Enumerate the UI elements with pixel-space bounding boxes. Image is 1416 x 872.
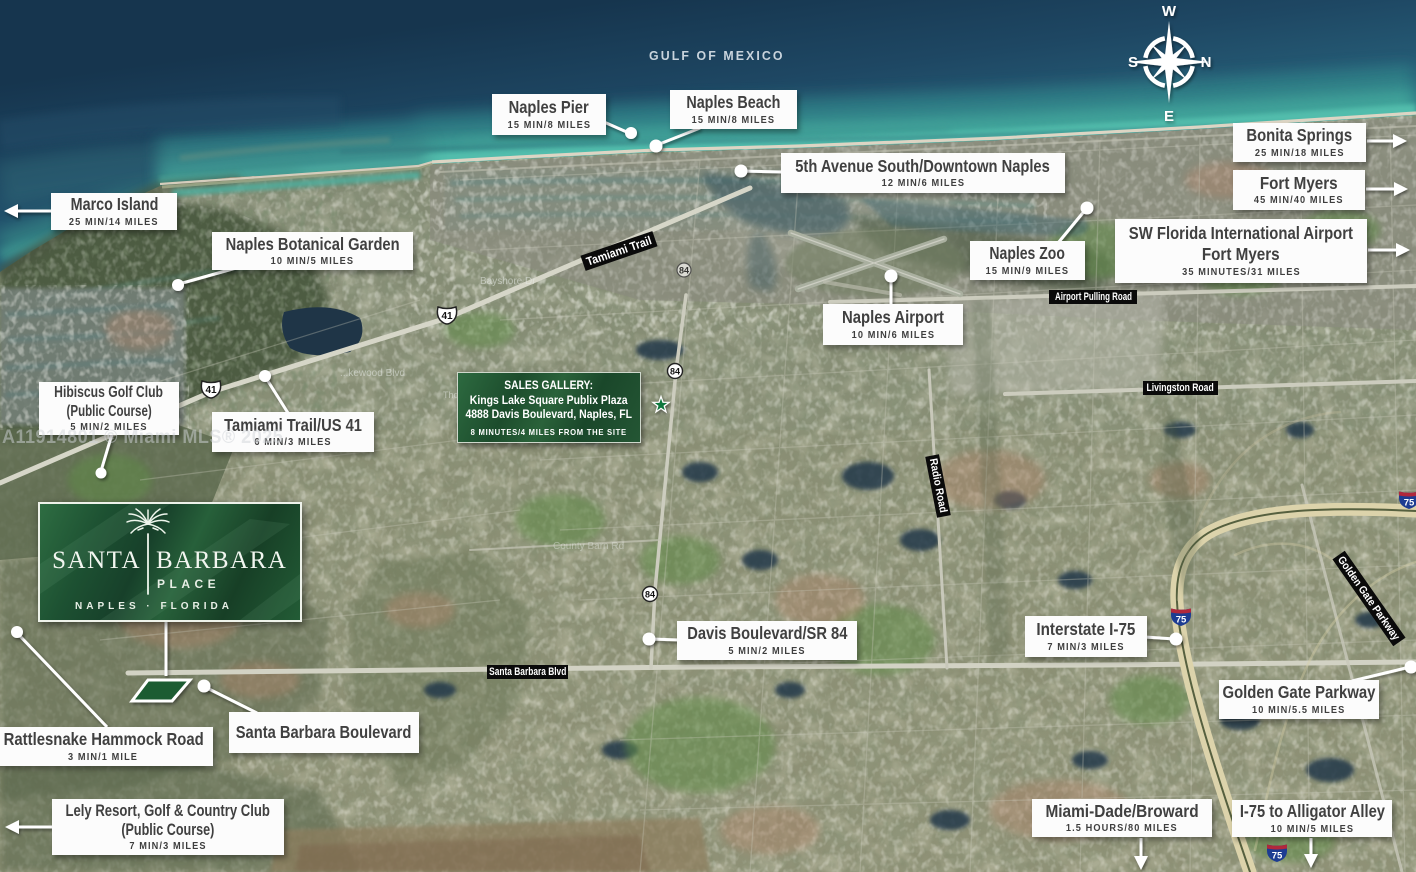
svg-text:84: 84 <box>679 266 689 276</box>
svg-text:W: W <box>1162 3 1177 20</box>
svg-text:75: 75 <box>1176 615 1187 626</box>
svg-text:PLACE: PLACE <box>157 577 220 591</box>
svg-text:84: 84 <box>670 367 680 377</box>
svg-text:S: S <box>1128 54 1138 71</box>
svg-text:SANTA: SANTA <box>52 547 141 574</box>
svg-text:41: 41 <box>205 385 217 396</box>
svg-text:NAPLES · FLORIDA: NAPLES · FLORIDA <box>75 601 233 612</box>
svg-text:E: E <box>1164 108 1174 125</box>
svg-text:75: 75 <box>1272 851 1283 862</box>
svg-text:75: 75 <box>1404 498 1415 509</box>
svg-text:BARBARA: BARBARA <box>156 547 287 574</box>
svg-text:84: 84 <box>645 590 655 600</box>
svg-text:N: N <box>1201 54 1212 71</box>
svg-text:41: 41 <box>441 311 453 322</box>
